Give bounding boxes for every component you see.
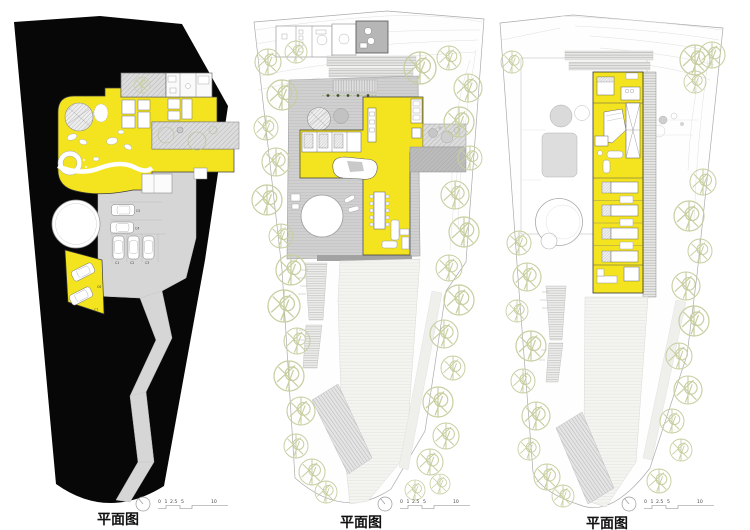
car (143, 236, 154, 259)
kitchen-counter (368, 108, 376, 142)
ghost-planter (575, 106, 590, 121)
panel-ground-floor-plan: 0 1 2.5 5 10 平面图 (252, 11, 484, 530)
scale-label: 1 (165, 499, 168, 505)
pergola-strip (333, 80, 377, 92)
scale-label: 10 (697, 499, 703, 505)
scale-label: 0 (158, 499, 161, 505)
pergola-band (569, 62, 650, 70)
north-arrow-icon (136, 497, 150, 511)
car-label: C1 (115, 261, 119, 265)
terrace-room (142, 174, 172, 193)
scale-label: 0 (400, 499, 403, 505)
car-label: C4 (135, 227, 139, 231)
scale-label: 5 (667, 499, 670, 505)
car-label: C7 (94, 308, 98, 312)
plan-caption: 平面图 (97, 512, 139, 528)
beds (304, 134, 343, 148)
scale-label: 1 (651, 499, 654, 505)
plan-caption: 平面图 (340, 515, 382, 530)
plan-caption: 平面图 (586, 516, 628, 530)
car (128, 236, 139, 259)
car-label: C2 (130, 261, 134, 265)
panel-upper-floor-plan: 0 1 2.5 5 10 平面图 (500, 15, 725, 530)
utility-building-gray (356, 21, 388, 53)
scale-label: 10 (211, 499, 217, 505)
pool-circle (52, 200, 100, 248)
pergola-band (329, 68, 413, 77)
scale-bar: 0 1 2.5 5 10 (644, 499, 714, 509)
table (339, 34, 349, 44)
scale-label: 2.5 (170, 499, 177, 505)
north-arrow-icon (378, 497, 392, 511)
scale-label: 5 (423, 499, 426, 505)
bathroom-block (411, 99, 422, 123)
rock-blob (94, 104, 108, 122)
ghost-small-circle (541, 233, 557, 249)
stair-run (305, 263, 327, 320)
courtyard-tree (65, 103, 93, 131)
small-room (194, 168, 207, 179)
scale-label: 1 (407, 499, 410, 505)
dining-table (374, 192, 385, 229)
balcony-strip (643, 72, 656, 297)
north-arrow-icon (622, 497, 636, 511)
car (111, 222, 134, 233)
car (113, 236, 124, 259)
bridge-hatched (152, 122, 239, 149)
scale-label: 2.5 (412, 499, 419, 505)
scale-label: 10 (453, 499, 459, 505)
pergola-band (327, 56, 416, 66)
ghost-planter (550, 105, 572, 127)
storage-box (412, 128, 421, 138)
plans-drawing: C5 C4 C1 C2 C3 C6 C7 0 1 2.5 5 10 平面图 (0, 0, 750, 530)
lower-terrace-dark (410, 147, 466, 172)
scale-bar: 0 1 2.5 5 10 (400, 499, 470, 509)
scale-label: 2.5 (656, 499, 663, 505)
car-label: C5 (136, 209, 140, 213)
deck-tree (308, 108, 331, 131)
planter-circle (334, 109, 349, 124)
panel-site-plan-black: C5 C4 C1 C2 C3 C6 C7 0 1 2.5 5 10 平面图 (14, 16, 239, 528)
pergola-band (565, 51, 653, 60)
car-label: C3 (145, 261, 149, 265)
plan-sheet: C5 C4 C1 C2 C3 C6 C7 0 1 2.5 5 10 平面图 (0, 0, 750, 530)
pool-circle (301, 195, 343, 237)
scale-bar: 0 1 2.5 5 10 (158, 499, 228, 509)
scale-label: 5 (181, 499, 184, 505)
ghost-pool-cover (542, 133, 577, 177)
car (112, 205, 135, 216)
car-label: C6 (97, 285, 101, 289)
scale-label: 0 (644, 499, 647, 505)
